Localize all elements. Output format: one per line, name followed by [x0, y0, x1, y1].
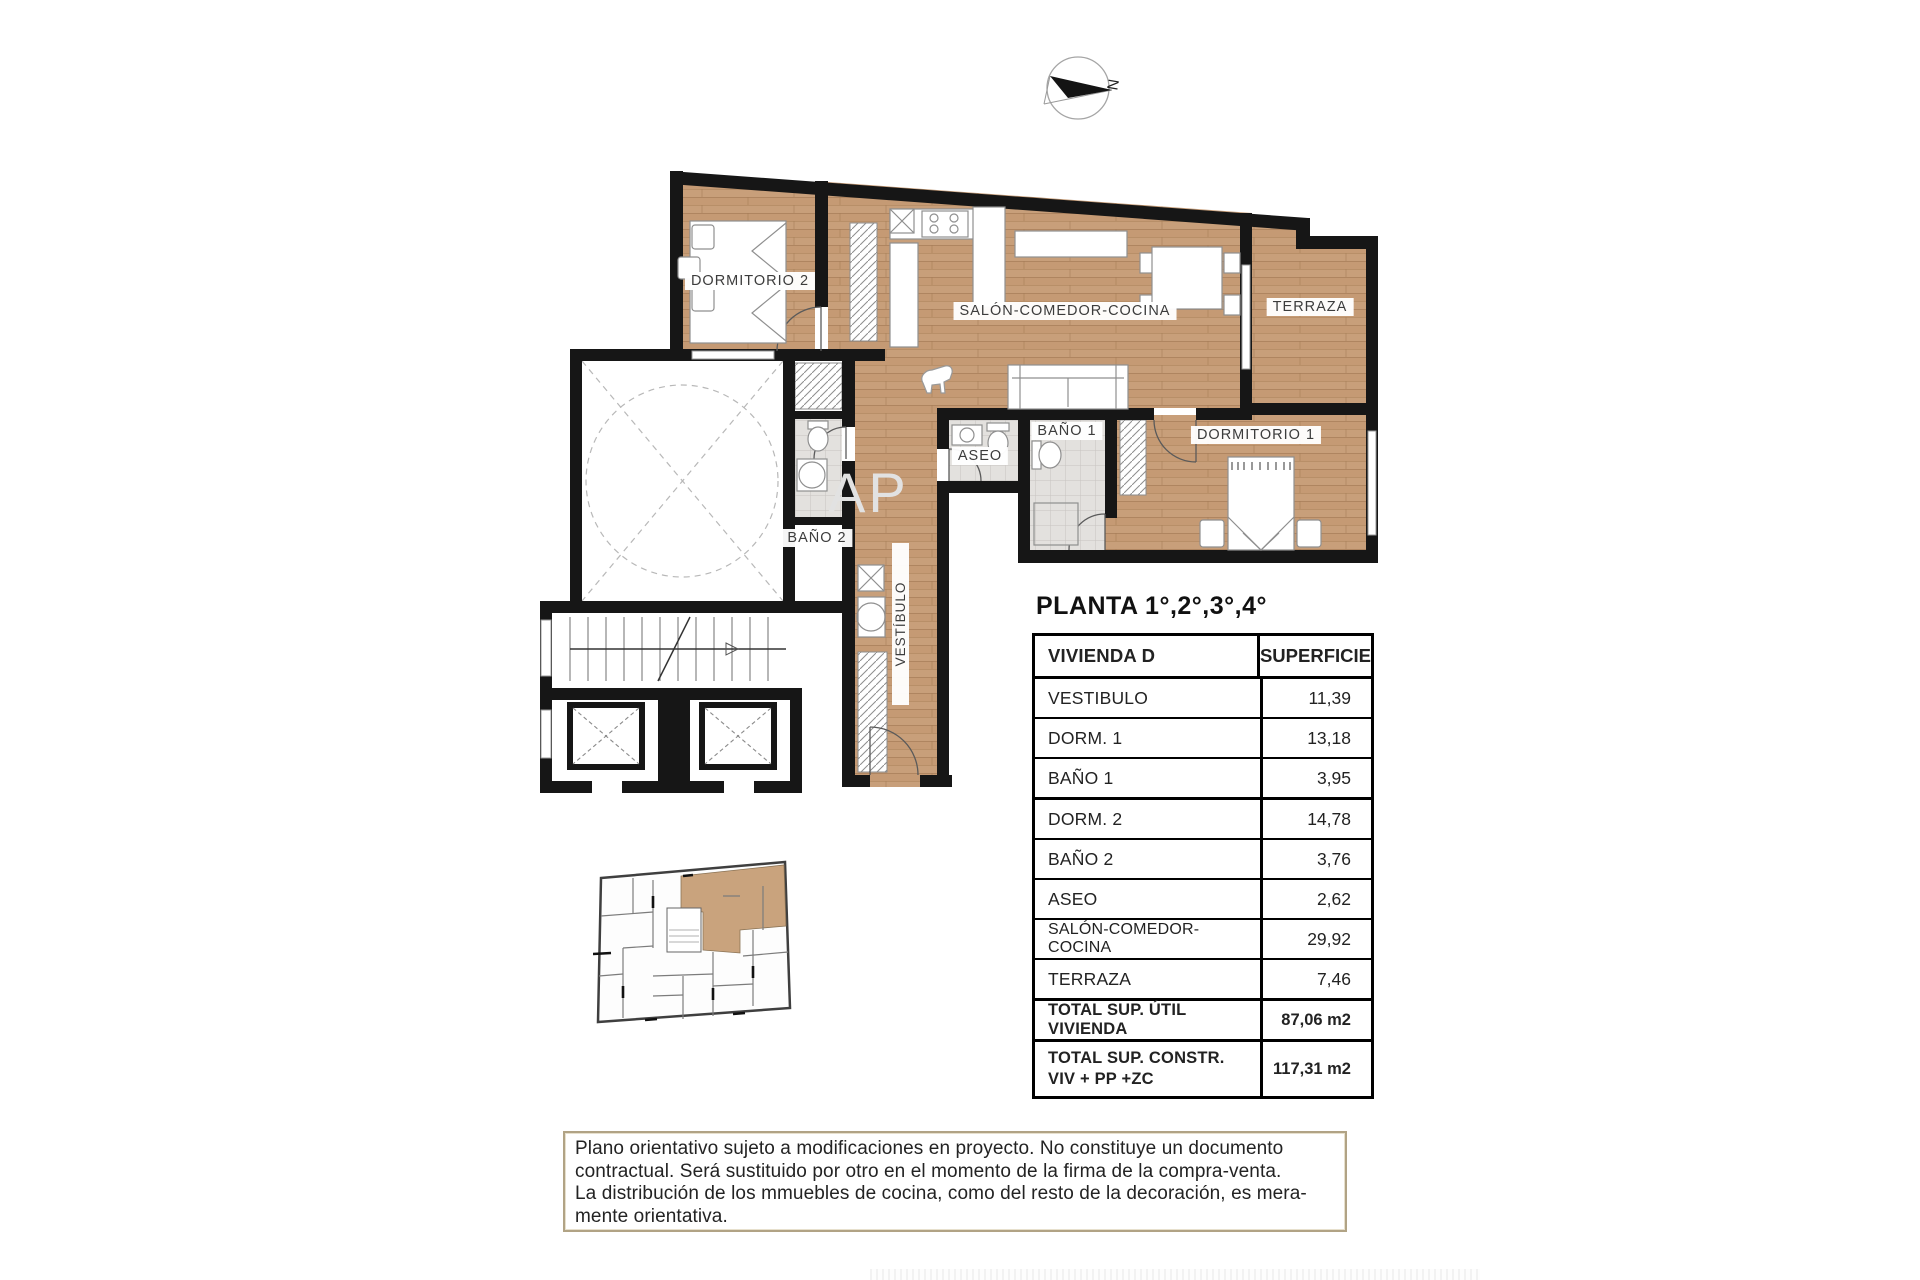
total-constr-label-line2: VIV + PP +ZC	[1048, 1069, 1260, 1090]
row-label: TERRAZA	[1035, 969, 1260, 990]
room-label-dormitorio-1: DORMITORIO 1	[1191, 426, 1321, 444]
disclaimer-box: Plano orientativo sujeto a modificacione…	[563, 1131, 1347, 1232]
total-constr-label-line1: TOTAL SUP. CONSTR.	[1048, 1048, 1260, 1069]
row-value: 3,76	[1260, 840, 1371, 878]
table-row: TERRAZA 7,46	[1035, 960, 1371, 1001]
row-value: 7,46	[1260, 960, 1371, 998]
plan-watermark: AP	[828, 460, 909, 525]
room-label-salon-comedor-cocina: SALÓN-COMEDOR-COCINA	[954, 302, 1177, 320]
key-plan	[593, 856, 798, 1036]
bottom-faint-strip	[870, 1269, 1480, 1280]
table-row: ASEO 2,62	[1035, 880, 1371, 920]
table-header-vivienda: VIVIENDA D	[1035, 645, 1257, 667]
room-label-aseo: ASEO	[952, 447, 1008, 465]
total-util-label: TOTAL SUP. ÚTIL VIVIENDA	[1035, 1001, 1260, 1039]
table-header-row: VIVIENDA D SUPERFICIE	[1035, 636, 1371, 679]
floor-title: PLANTA 1°,2°,3°,4°	[1036, 592, 1267, 621]
row-label: BAÑO 2	[1035, 849, 1260, 870]
row-value: 13,18	[1260, 719, 1371, 757]
table-total-constr-row: TOTAL SUP. CONSTR. VIV + PP +ZC 117,31 m…	[1035, 1042, 1371, 1096]
row-value: 11,39	[1260, 679, 1371, 717]
room-label-vestibulo: VESTÍBULO	[892, 543, 909, 705]
table-row: VESTIBULO 11,39	[1035, 679, 1371, 719]
row-label: DORM. 2	[1035, 809, 1260, 830]
total-util-value: 87,06 m2	[1260, 1001, 1371, 1039]
row-label: BAÑO 1	[1035, 768, 1260, 789]
row-value: 14,78	[1260, 800, 1371, 838]
disclaimer-line: La distribución de los mmuebles de cocin…	[575, 1183, 1335, 1206]
table-row: BAÑO 1 3,95	[1035, 759, 1371, 800]
disclaimer-line: contractual. Será sustituido por otro en…	[575, 1161, 1335, 1184]
row-label: DORM. 1	[1035, 728, 1260, 749]
room-label-terraza: TERRAZA	[1267, 298, 1354, 316]
table-row: SALÓN-COMEDOR-COCINA 29,92	[1035, 920, 1371, 960]
row-label: SALÓN-COMEDOR-COCINA	[1035, 921, 1260, 957]
room-label-dormitorio-2: DORMITORIO 2	[685, 272, 815, 290]
total-constr-label: TOTAL SUP. CONSTR. VIV + PP +ZC	[1035, 1048, 1260, 1089]
table-row: BAÑO 2 3,76	[1035, 840, 1371, 880]
disclaimer-line: Plano orientativo sujeto a modificacione…	[575, 1138, 1335, 1161]
surface-table: VIVIENDA D SUPERFICIE VESTIBULO 11,39 DO…	[1032, 633, 1374, 1099]
row-value: 3,95	[1260, 759, 1371, 797]
table-row: DORM. 1 13,18	[1035, 719, 1371, 759]
row-label: VESTIBULO	[1035, 688, 1260, 709]
table-header-superficie: SUPERFICIE	[1257, 636, 1371, 676]
room-label-bano-2: BAÑO 2	[781, 529, 852, 547]
total-constr-value: 117,31 m2	[1260, 1042, 1371, 1096]
room-label-bano-1: BAÑO 1	[1031, 422, 1102, 440]
disclaimer-line: mente orientativa.	[575, 1206, 1335, 1229]
table-row: DORM. 2 14,78	[1035, 800, 1371, 840]
row-value: 29,92	[1260, 920, 1371, 958]
table-total-util-row: TOTAL SUP. ÚTIL VIVIENDA 87,06 m2	[1035, 1001, 1371, 1042]
row-label: ASEO	[1035, 889, 1260, 910]
compass-north-icon	[1030, 42, 1140, 132]
row-value: 2,62	[1260, 880, 1371, 918]
